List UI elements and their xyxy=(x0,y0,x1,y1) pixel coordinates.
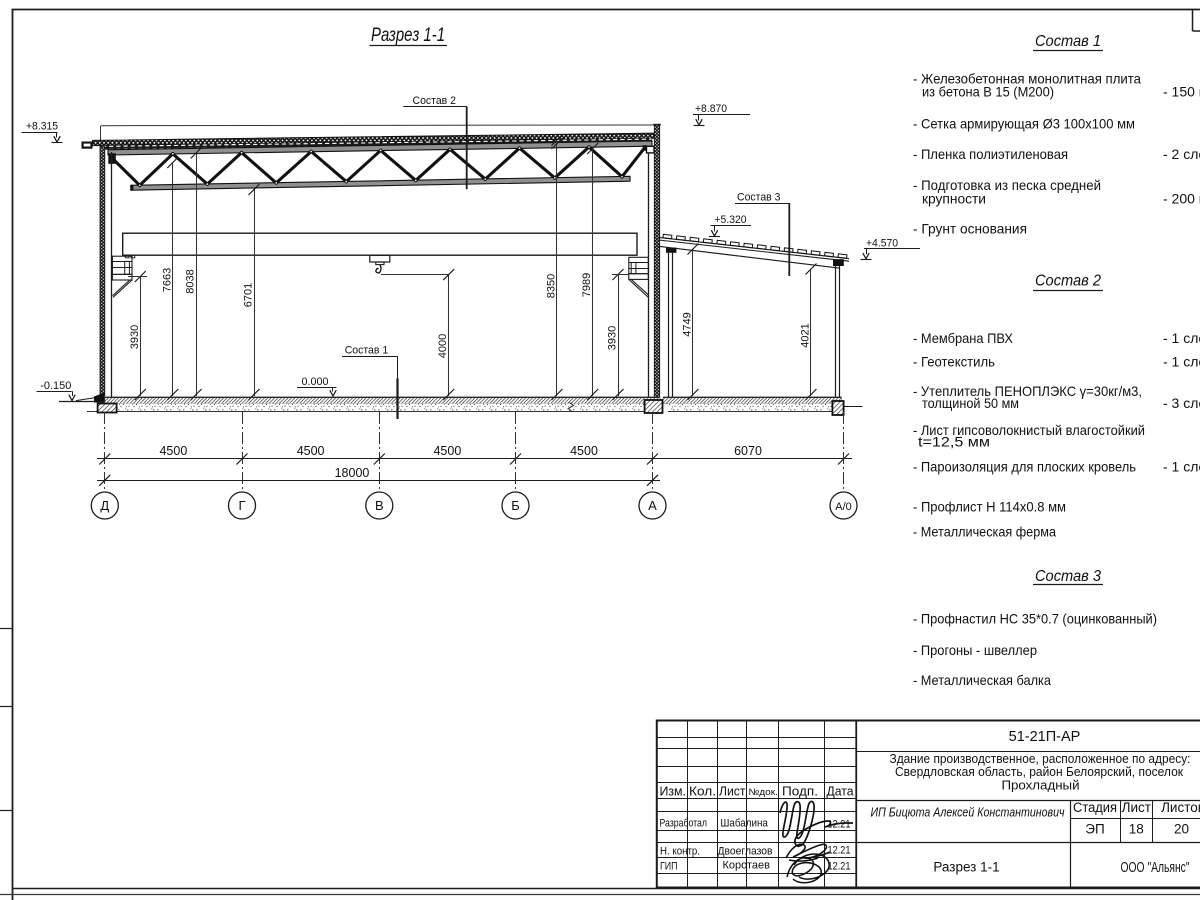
svg-text:t=12,5 мм: t=12,5 мм xyxy=(918,434,990,450)
svg-text:ООО "Альянс": ООО "Альянс" xyxy=(1121,860,1190,876)
svg-text:Состав 1: Состав 1 xyxy=(345,345,389,357)
svg-text:4500: 4500 xyxy=(433,444,461,458)
svg-text:+4.570: +4.570 xyxy=(866,238,898,250)
svg-text:- Профнастил НС 35*0.7 (оцинко: - Профнастил НС 35*0.7 (оцинкованный) xyxy=(913,611,1157,627)
svg-text:12.21: 12.21 xyxy=(828,861,851,873)
svg-text:Разрез 1-1: Разрез 1-1 xyxy=(371,25,445,46)
svg-text:- Мембрана ПВХ: - Мембрана ПВХ xyxy=(913,330,1014,346)
svg-text:Д: Д xyxy=(100,498,109,513)
svg-text:Двоеглазов: Двоеглазов xyxy=(718,846,773,858)
svg-text:18000: 18000 xyxy=(335,466,370,480)
svg-text:Листов: Листов xyxy=(1161,800,1200,815)
svg-text:- 150 мм: - 150 мм xyxy=(1163,84,1200,100)
svg-text:- 1 слой: - 1 слой xyxy=(1163,354,1200,370)
svg-text:Кол.: Кол. xyxy=(689,785,716,799)
svg-text:+5.320: +5.320 xyxy=(715,214,747,226)
svg-text:- Пароизоляция для плоских кро: - Пароизоляция для плоских кровель xyxy=(913,459,1136,475)
svg-text:4500: 4500 xyxy=(297,444,325,458)
svg-text:А: А xyxy=(648,498,657,513)
svg-text:7989: 7989 xyxy=(581,273,593,297)
svg-text:- Грунт основания: - Грунт основания xyxy=(913,220,1027,236)
svg-text:7663: 7663 xyxy=(161,268,173,292)
svg-text:- 1 слой: - 1 слой xyxy=(1163,330,1200,346)
svg-text:ИП Бицюта Алексей Константинов: ИП Бицюта Алексей Константинович xyxy=(871,805,1065,820)
svg-text:Состав 3: Состав 3 xyxy=(1035,568,1101,585)
svg-text:Подп.: Подп. xyxy=(782,785,818,799)
svg-text:А/0: А/0 xyxy=(835,501,852,513)
svg-text:- 3 слоя: - 3 слоя xyxy=(1163,395,1200,411)
svg-text:Прохладный: Прохладный xyxy=(1001,778,1079,793)
svg-text:4021: 4021 xyxy=(800,323,812,347)
svg-text:Н. контр.: Н. контр. xyxy=(660,846,700,858)
svg-text:0.000: 0.000 xyxy=(302,376,329,388)
svg-text:Разрез 1-1: Разрез 1-1 xyxy=(933,860,999,875)
svg-text:- 200 мм: - 200 мм xyxy=(1163,191,1200,207)
svg-text:8038: 8038 xyxy=(185,269,197,293)
svg-text:- Металлическая балка: - Металлическая балка xyxy=(913,672,1051,688)
svg-text:Изм.: Изм. xyxy=(660,785,687,799)
svg-text:4500: 4500 xyxy=(159,444,187,458)
svg-text:51-21П-АР: 51-21П-АР xyxy=(1009,729,1081,745)
svg-text:- Сетка армирующая Ø3 100х100: - Сетка армирующая Ø3 100х100 мм xyxy=(913,115,1135,131)
svg-text:Дата: Дата xyxy=(827,785,854,799)
svg-text:6701: 6701 xyxy=(243,283,255,307)
svg-text:Состав 1: Состав 1 xyxy=(1035,33,1101,50)
svg-text:ГИП: ГИП xyxy=(660,861,678,873)
svg-text:из бетона В 15 (М200): из бетона В 15 (М200) xyxy=(922,84,1054,100)
svg-text:20: 20 xyxy=(1174,822,1189,837)
svg-text:- Прогоны - швеллер: - Прогоны - швеллер xyxy=(913,642,1037,658)
svg-text:4000: 4000 xyxy=(437,334,449,358)
svg-text:крупности: крупности xyxy=(922,191,986,207)
svg-text:4500: 4500 xyxy=(570,444,598,458)
svg-text:+8.870: +8.870 xyxy=(695,103,727,115)
svg-text:6070: 6070 xyxy=(734,444,762,458)
svg-text:- Пленка полиэтиленовая: - Пленка полиэтиленовая xyxy=(913,146,1068,162)
svg-text:3930: 3930 xyxy=(129,325,141,349)
svg-text:18: 18 xyxy=(1129,822,1144,837)
svg-text:Б: Б xyxy=(511,498,520,513)
svg-text:Состав 2: Состав 2 xyxy=(1035,273,1101,290)
svg-text:Состав 2: Состав 2 xyxy=(413,95,457,107)
svg-text:Г: Г xyxy=(238,498,245,513)
svg-text:ЭП: ЭП xyxy=(1085,822,1104,837)
svg-text:8350: 8350 xyxy=(546,274,558,298)
svg-text:- 2 слоя: - 2 слоя xyxy=(1163,146,1200,162)
svg-text:Состав 3: Состав 3 xyxy=(737,192,781,204)
svg-text:- 1 слой: - 1 слой xyxy=(1163,459,1200,475)
svg-text:Разработал: Разработал xyxy=(660,818,708,830)
svg-text:- Геотекстиль: - Геотекстиль xyxy=(913,354,995,370)
svg-text:Лист: Лист xyxy=(719,785,746,799)
svg-text:Стадия: Стадия xyxy=(1073,800,1117,815)
svg-text:Шабалина: Шабалина xyxy=(720,818,768,830)
svg-text:Коротаев: Коротаев xyxy=(723,860,771,872)
svg-text:-0.150: -0.150 xyxy=(40,380,71,392)
svg-text:- Профлист Н 114х0.8 мм: - Профлист Н 114х0.8 мм xyxy=(913,499,1066,515)
svg-text:4749: 4749 xyxy=(682,312,694,336)
svg-text:12.21: 12.21 xyxy=(828,845,851,857)
svg-text:+8.315: +8.315 xyxy=(26,121,58,133)
svg-text:- Металлическая ферма: - Металлическая ферма xyxy=(913,524,1056,540)
svg-text:толщиной 50 мм: толщиной 50 мм xyxy=(922,395,1019,411)
svg-text:Лист: Лист xyxy=(1122,800,1151,815)
svg-text:№док.: №док. xyxy=(749,787,779,798)
svg-text:В: В xyxy=(375,498,384,513)
svg-text:3930: 3930 xyxy=(607,326,619,350)
